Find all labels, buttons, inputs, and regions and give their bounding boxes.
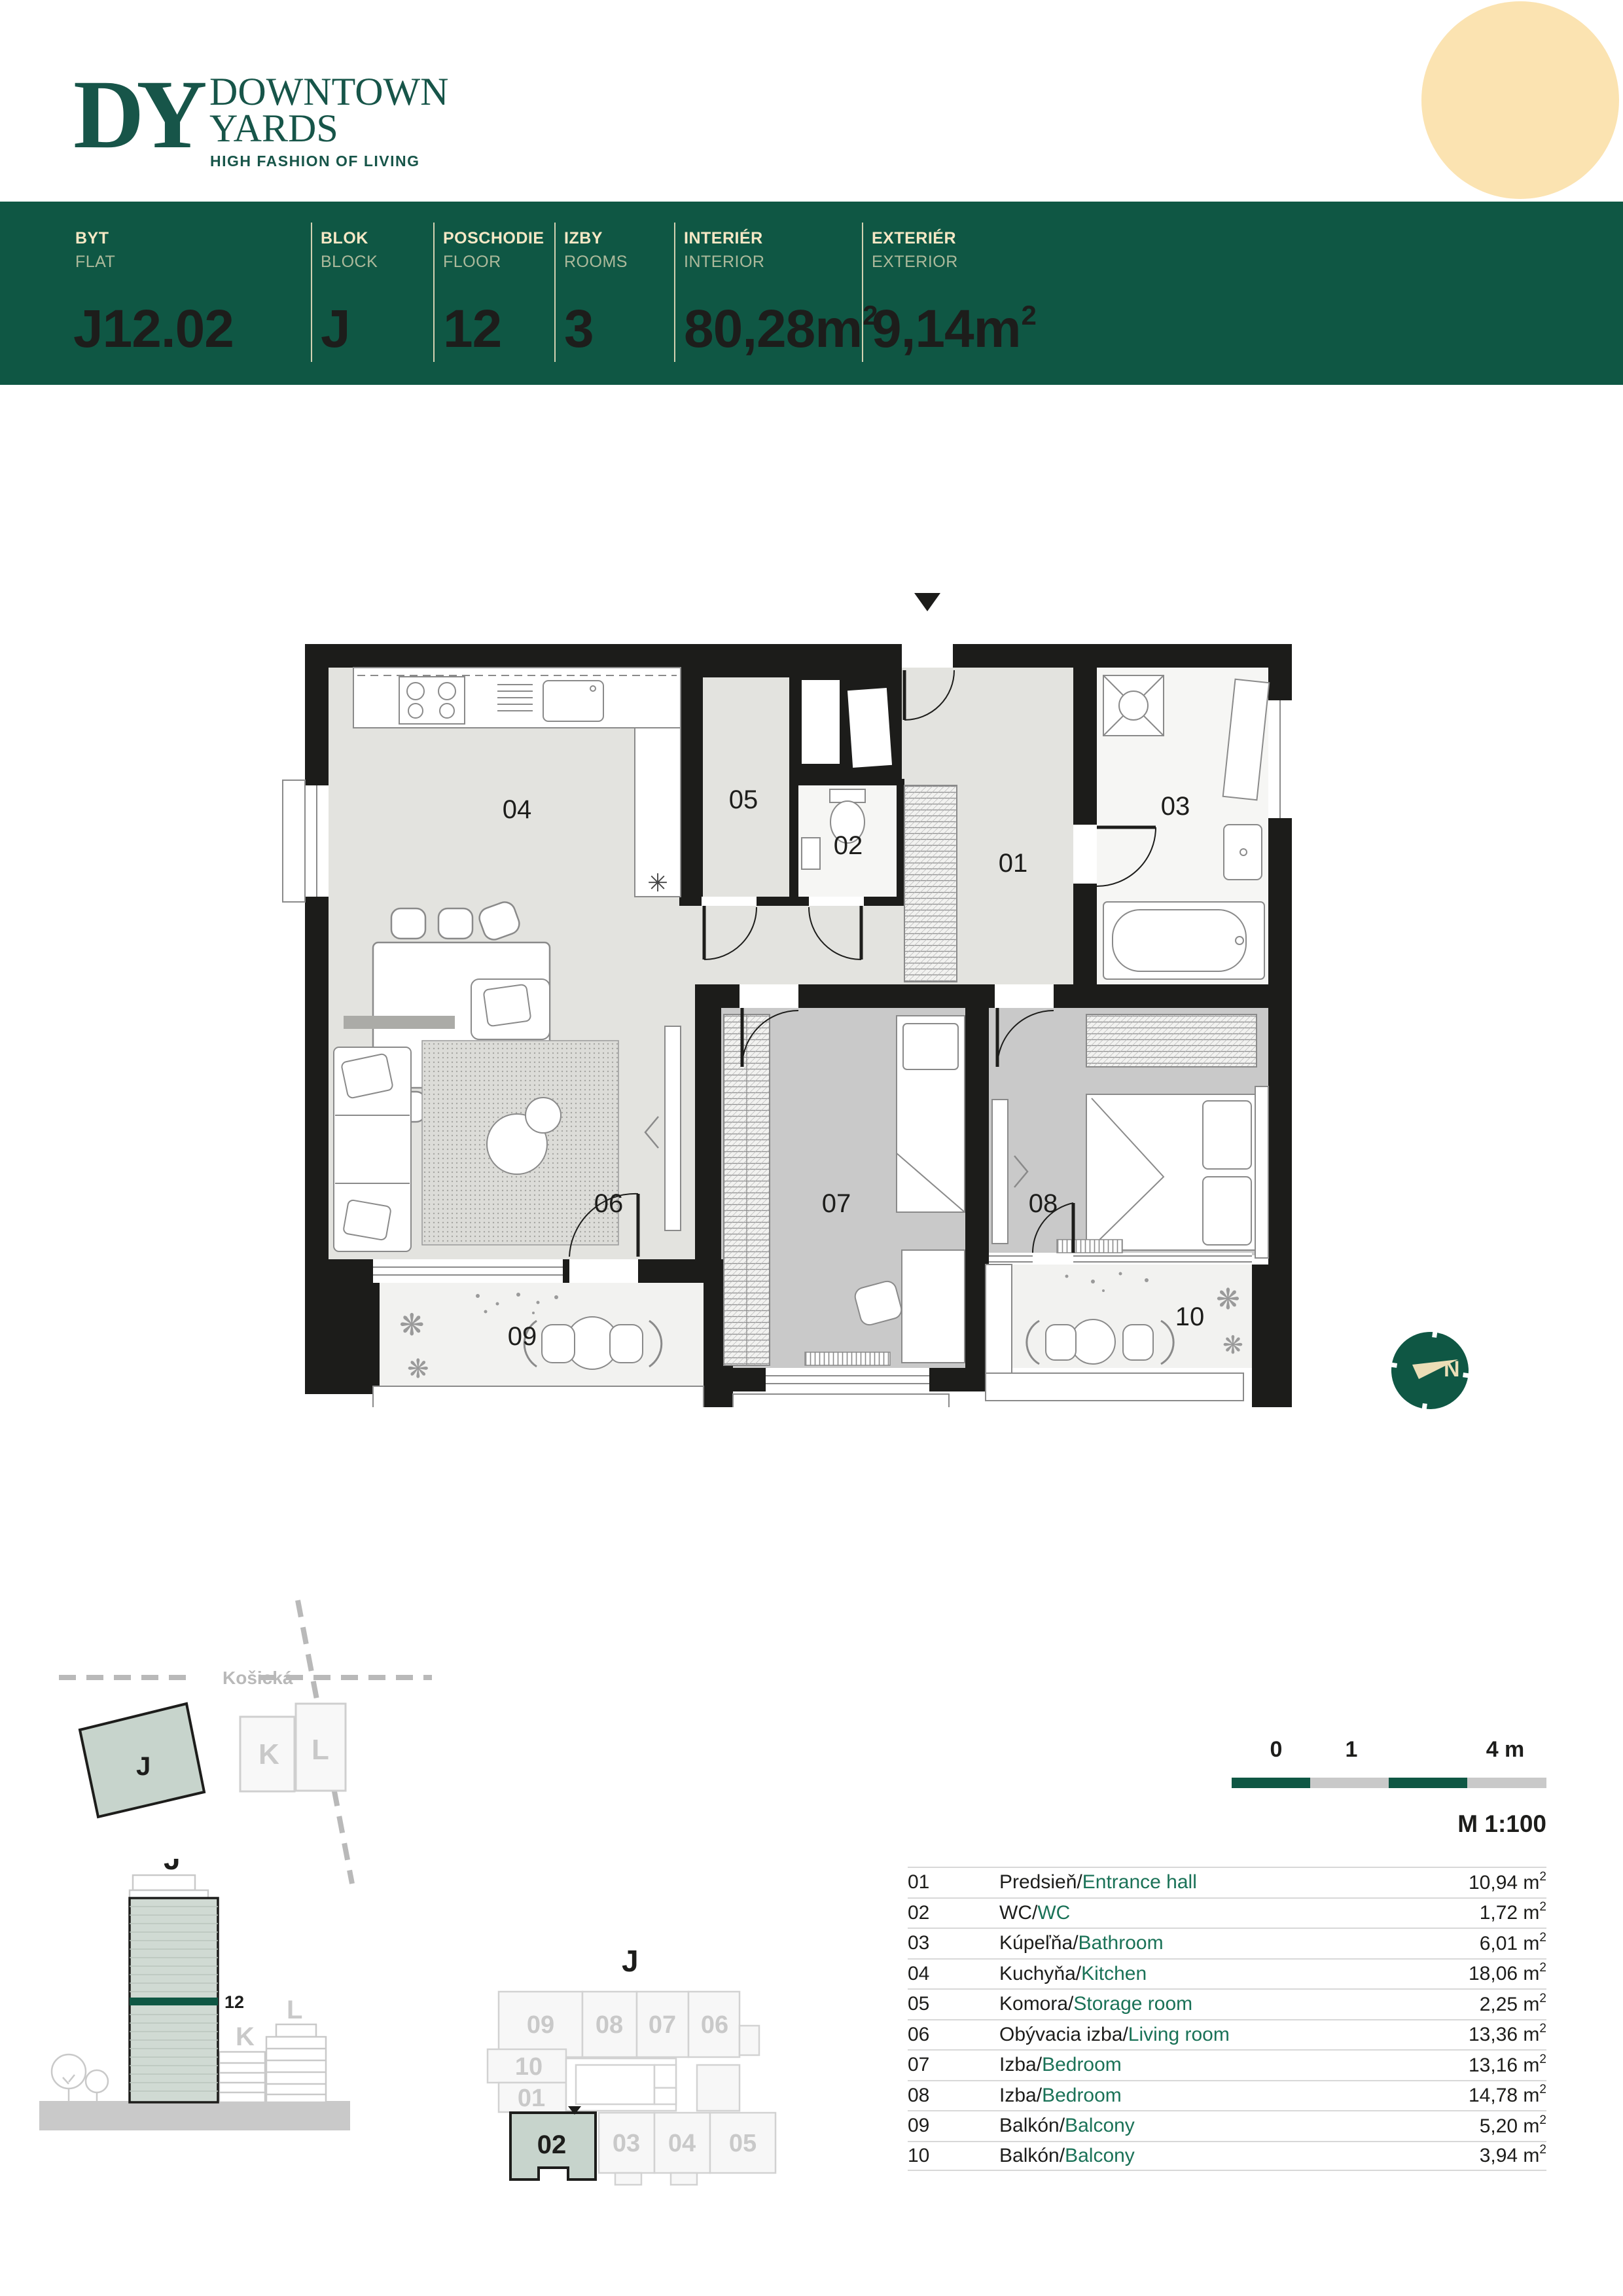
balcony-chair	[1123, 1325, 1153, 1360]
site-block-j-label: J	[136, 1752, 151, 1781]
floor-label-en: FLOOR	[443, 250, 544, 274]
legend-num: 03	[908, 1932, 999, 1954]
scale-segment	[1389, 1778, 1467, 1788]
bed-single	[897, 1016, 965, 1212]
svg-text:07: 07	[649, 2011, 676, 2039]
small-basin	[802, 838, 820, 869]
room-label-09: 09	[508, 1322, 537, 1351]
legend-area: 10,94 m2	[1469, 1871, 1546, 1894]
divider	[674, 223, 675, 362]
legend-name: Izba/Bedroom	[999, 2054, 1469, 2076]
building-elevation: K L 12 J	[39, 1859, 406, 2140]
flat-label-en: FLAT	[75, 250, 115, 274]
ground	[39, 2101, 350, 2130]
legend-name: Predsieň/Entrance hall	[999, 1871, 1469, 1893]
legend-name: Izba/Bedroom	[999, 2085, 1469, 2107]
block-labels: BLOK BLOCK	[321, 226, 378, 274]
legend-num: 09	[908, 2115, 999, 2137]
legend-area: 5,20 m2	[1480, 2115, 1546, 2138]
logo-line1: DOWNTOWN	[209, 72, 448, 111]
room-label-08: 08	[1029, 1189, 1058, 1218]
legend-area: 1,72 m2	[1480, 1901, 1546, 1924]
legend-area: 13,16 m2	[1469, 2054, 1546, 2077]
shaft-box	[801, 679, 840, 764]
legend-area: 6,01 m2	[1480, 1932, 1546, 1955]
legend-row: 07 Izba/Bedroom 13,16 m2	[908, 2049, 1546, 2080]
floor-label-sk: POSCHODIE	[443, 226, 544, 250]
legend-num: 02	[908, 1902, 999, 1924]
site-block-l-label: L	[312, 1734, 329, 1766]
legend-name: Balkón/Balcony	[999, 2145, 1480, 2167]
scale-0: 0	[1270, 1737, 1283, 1763]
plant-icon: ❋	[1222, 1332, 1243, 1359]
svg-text:01: 01	[518, 2085, 545, 2112]
logo-line2: YARDS	[209, 109, 338, 148]
legend-num: 05	[908, 1993, 999, 2015]
legend-area: 18,06 m2	[1469, 1962, 1546, 1985]
divider	[311, 223, 312, 362]
block-value: J	[321, 298, 350, 360]
legend-row: 10 Balkón/Balcony 3,94 m2	[908, 2141, 1546, 2172]
plant-icon: ❋	[407, 1355, 429, 1384]
wardrobe-08	[1086, 1014, 1257, 1067]
divider	[554, 223, 556, 362]
room-label-06: 06	[594, 1189, 624, 1218]
balcony-rail	[986, 1373, 1243, 1401]
highlighted-floor-band	[130, 1998, 218, 2005]
balcony-chair	[542, 1325, 575, 1363]
brand-logo: DY	[73, 65, 200, 164]
bed-double	[1086, 1086, 1268, 1258]
tv-board-08	[992, 1100, 1008, 1244]
legend-num: 06	[908, 2024, 999, 2046]
svg-text:06: 06	[701, 2011, 728, 2039]
hall-wardrobe	[904, 785, 957, 982]
legend-num: 08	[908, 2085, 999, 2107]
legend-row: 08 Izba/Bedroom 14,78 m2	[908, 2080, 1546, 2111]
divider	[433, 223, 435, 362]
radiator	[1057, 1240, 1122, 1253]
floorplate-highlight-label: 02	[537, 2130, 567, 2159]
armchair	[471, 979, 550, 1039]
legend-row: 06 Obývacia izba/Living room 13,36 m2	[908, 2019, 1546, 2050]
shaft-box	[847, 687, 893, 768]
entrance-arrow-icon	[914, 593, 940, 611]
scale-1: 1	[1346, 1737, 1358, 1763]
scale-ratio: M 1:100	[1457, 1810, 1546, 1838]
legend-name: Kúpeľňa/Bathroom	[999, 1932, 1480, 1954]
logo-tagline: HIGH FASHION OF LIVING	[210, 152, 420, 170]
legend-name: Balkón/Balcony	[999, 2115, 1480, 2137]
trees	[52, 2054, 108, 2102]
floor-plan: ✳	[281, 589, 1329, 1407]
room-label-02: 02	[834, 831, 863, 860]
elevation-l-label: L	[287, 1996, 302, 2024]
building-l	[266, 2024, 326, 2102]
wall-shelf	[344, 1016, 455, 1029]
block-label-sk: BLOK	[321, 226, 378, 250]
svg-text:05: 05	[729, 2130, 757, 2157]
legend-area: 3,94 m2	[1480, 2144, 1546, 2167]
balcony-rail	[373, 1386, 704, 1407]
tower-roof-step	[133, 1875, 195, 1890]
floor-value: 12	[443, 298, 501, 360]
interior-label-sk: INTERIÉR	[684, 226, 764, 250]
rooms-labels: IZBY ROOMS	[564, 226, 628, 274]
flat-number: J12.02	[73, 298, 234, 360]
tv-board	[665, 1026, 681, 1230]
rooms-label-sk: IZBY	[564, 226, 628, 250]
exterior-label-en: EXTERIOR	[872, 250, 958, 274]
sofa	[334, 1047, 411, 1251]
legend-name: Komora/Storage room	[999, 1993, 1480, 2015]
legend-num: 07	[908, 2054, 999, 2076]
balcony-chair	[610, 1325, 643, 1363]
window-sill	[733, 1394, 949, 1407]
scale-bar: 0 1 4 m M 1:100	[1232, 1737, 1546, 1835]
balcony-table	[1071, 1319, 1115, 1364]
legend-row: 03 Kúpeľňa/Bathroom 6,01 m2	[908, 1928, 1546, 1958]
legend-name: WC/WC	[999, 1902, 1480, 1924]
legend-row: 01 Predsieň/Entrance hall 10,94 m2	[908, 1867, 1546, 1897]
room-label-03: 03	[1161, 792, 1190, 821]
legend-row: 05 Komora/Storage room 2,25 m2	[908, 1988, 1546, 2019]
interior-value: 80,28m2	[684, 298, 876, 360]
svg-text:10: 10	[515, 2053, 543, 2081]
room-label-01: 01	[999, 849, 1028, 878]
exterior-value: 9,14m2	[872, 298, 1035, 360]
floorplate-building-label: J	[622, 1944, 639, 1978]
site-block-k-label: K	[259, 1738, 279, 1770]
floor-number-label: 12	[224, 1992, 244, 2012]
legend-row: 04 Kuchyňa/Kitchen 18,06 m2	[908, 1958, 1546, 1989]
floor-plate-diagram: J 09 08 07 06 10 01 03	[484, 1931, 792, 2193]
plant-icon: ❋	[399, 1308, 425, 1342]
svg-text:03: 03	[613, 2130, 640, 2157]
radiator	[805, 1352, 890, 1365]
kitchen-symbol: ✳	[647, 870, 668, 897]
room-label-10: 10	[1175, 1302, 1205, 1331]
divider	[862, 223, 863, 362]
scale-segment	[1310, 1778, 1389, 1788]
legend-row: 02 WC/WC 1,72 m2	[908, 1897, 1546, 1928]
building-k	[219, 2052, 265, 2102]
interior-label-en: INTERIOR	[684, 250, 764, 274]
legend-name: Obývacia izba/Living room	[999, 2024, 1469, 2046]
rooms-value: 3	[564, 298, 594, 360]
flat-label-sk: BYT	[75, 226, 115, 250]
side-table	[526, 1098, 561, 1133]
room-label-07: 07	[822, 1189, 851, 1218]
plant-icon: ❋	[1216, 1283, 1240, 1316]
room-label-04: 04	[503, 795, 532, 824]
pillow	[1203, 1177, 1251, 1245]
legend-num: 01	[908, 1871, 999, 1893]
legend-area: 2,25 m2	[1480, 1993, 1546, 2016]
balcony-chair	[1046, 1325, 1076, 1360]
block-label-en: BLOCK	[321, 250, 378, 274]
interior-labels: INTERIÉR INTERIOR	[684, 226, 764, 274]
exterior-label-sk: EXTERIÉR	[872, 226, 958, 250]
scale-segment	[1467, 1778, 1546, 1788]
exterior-labels: EXTERIÉR EXTERIOR	[872, 226, 958, 274]
compass-north-label: N	[1444, 1357, 1460, 1382]
flat-summary-band: BYT FLAT J12.02 BLOK BLOCK J POSCHODIE F…	[0, 202, 1623, 385]
scale-segment	[1232, 1778, 1310, 1788]
floor-labels: POSCHODIE FLOOR	[443, 226, 544, 274]
street-label: Košická	[223, 1668, 293, 1688]
legend-area: 13,36 m2	[1469, 2023, 1546, 2046]
flat-id-labels: BYT FLAT	[75, 226, 115, 274]
elevation-j-label: J	[164, 1859, 181, 1876]
pillow	[1203, 1101, 1251, 1169]
compass: N	[1381, 1321, 1479, 1420]
room-legend-table: 01 Predsieň/Entrance hall 10,94 m2 02 WC…	[908, 1867, 1546, 2171]
flat-datasheet-page: DY DOWNTOWN YARDS HIGH FASHION OF LIVING…	[0, 0, 1623, 2296]
svg-text:04: 04	[668, 2130, 696, 2157]
legend-name: Kuchyňa/Kitchen	[999, 1963, 1469, 1985]
legend-num: 10	[908, 2145, 999, 2167]
scale-4m: 4 m	[1486, 1737, 1525, 1763]
rooms-label-en: ROOMS	[564, 250, 628, 274]
svg-text:08: 08	[596, 2011, 623, 2039]
peach-circle-decoration	[1421, 1, 1619, 199]
legend-area: 14,78 m2	[1469, 2084, 1546, 2107]
logo-monogram: DY	[73, 60, 200, 169]
room-label-05: 05	[729, 785, 758, 814]
stove-icon	[399, 677, 465, 724]
elevation-k-label: K	[236, 2022, 255, 2051]
legend-row: 09 Balkón/Balcony 5,20 m2	[908, 2110, 1546, 2141]
svg-text:09: 09	[527, 2011, 554, 2039]
legend-num: 04	[908, 1963, 999, 1985]
